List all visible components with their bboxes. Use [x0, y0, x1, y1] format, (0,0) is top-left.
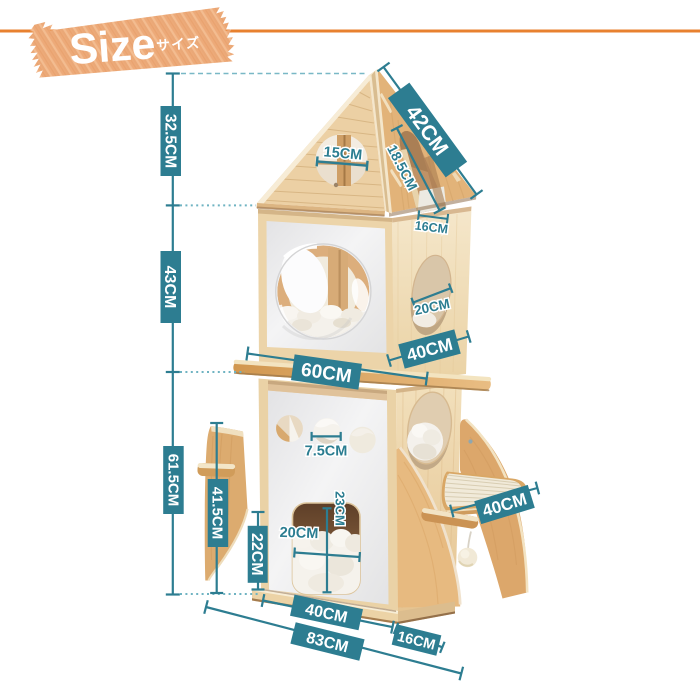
- svg-text:15CM: 15CM: [323, 144, 363, 163]
- svg-text:Size: Size: [68, 20, 157, 74]
- svg-text:43CM: 43CM: [161, 266, 178, 309]
- svg-text:41.5CM: 41.5CM: [209, 487, 226, 540]
- svg-text:61.5CM: 61.5CM: [164, 454, 181, 507]
- svg-text:32.5CM: 32.5CM: [161, 114, 178, 168]
- svg-text:22CM: 22CM: [248, 533, 265, 576]
- svg-text:7.5CM: 7.5CM: [305, 444, 348, 460]
- svg-text:20CM: 20CM: [279, 525, 318, 542]
- svg-text:23CM: 23CM: [333, 491, 348, 526]
- svg-text:サイズ: サイズ: [156, 34, 202, 53]
